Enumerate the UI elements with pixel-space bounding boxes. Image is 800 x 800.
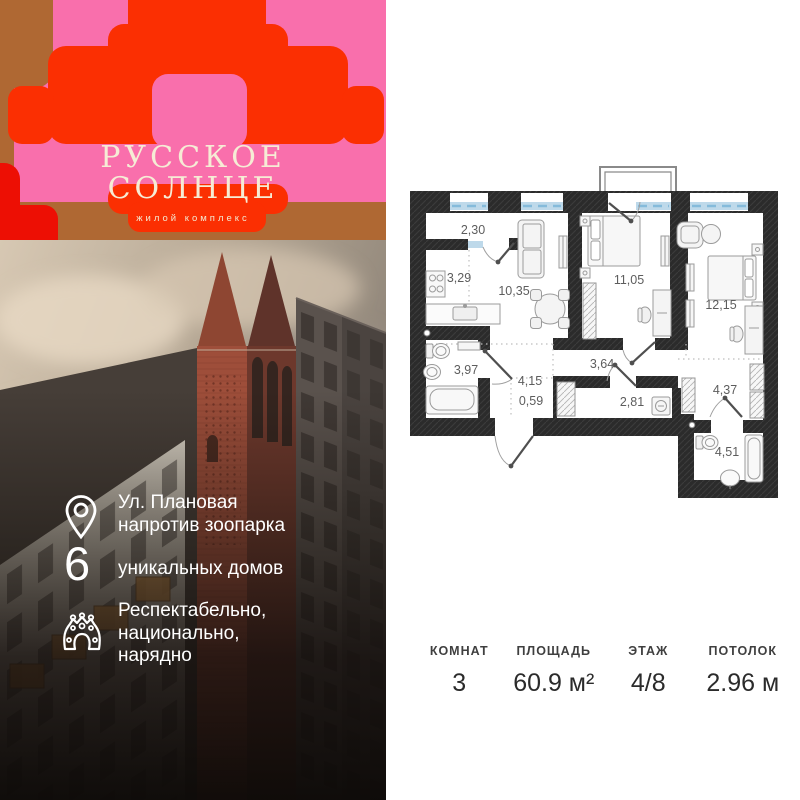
room-area-label: 10,35 — [498, 284, 529, 298]
location-pin-icon — [62, 494, 100, 540]
stat-ceiling: ПОТОЛОК 2.96 м — [696, 644, 791, 698]
pattern-orange-arm-right — [342, 86, 384, 144]
feature-style-line1: Респектабельно, — [118, 600, 266, 623]
kitchen-sink — [453, 307, 477, 320]
feature-address: Ул. Плановая напротив зоопарка — [118, 492, 285, 537]
feature-address-line2: напротив зоопарка — [118, 515, 285, 538]
stat-label: ЭТАЖ — [601, 644, 696, 658]
stat-area: ПЛОЩАДЬ 60.9 м² — [507, 644, 602, 698]
feature-style: Респектабельно, национально, нарядно — [118, 600, 266, 668]
room-area-label: 3,29 — [447, 271, 471, 285]
brand-logo: РУССКОЕ СОЛНЦЕ жилой комплекс — [40, 142, 346, 224]
feature-houses-line1: уникальных домов — [118, 558, 283, 581]
brand-name-line2: СОЛНЦЕ — [40, 173, 346, 204]
sink-1 — [424, 365, 441, 380]
room-area-label: 4,15 — [518, 374, 542, 388]
feature-address-line1: Ул. Плановая — [118, 492, 285, 515]
sofa — [518, 220, 544, 278]
numeral-six: 6 — [64, 540, 90, 587]
real-estate-flyer: РУССКОЕ СОЛНЦЕ жилой комплекс — [0, 0, 800, 800]
stat-value: 3 — [412, 669, 507, 698]
stat-label: ПОТОЛОК — [696, 644, 791, 658]
stat-value: 60.9 м² — [507, 669, 602, 698]
pattern-orange-arm-left — [8, 86, 54, 144]
room-area-label: 3,64 — [590, 357, 614, 371]
brand-name-line1: РУССКОЕ — [40, 142, 346, 173]
sink-2 — [721, 470, 740, 486]
feature-style-line3: нарядно — [118, 645, 266, 668]
room-area-label: 0,59 — [519, 394, 543, 408]
stat-label: КОМНАТ — [412, 644, 507, 658]
brand-panel: РУССКОЕ СОЛНЦЕ жилой комплекс — [0, 0, 386, 800]
balcony-rail — [600, 167, 676, 191]
kokoshnik-icon — [58, 610, 106, 654]
desk-2 — [745, 306, 763, 354]
room-area-label: 12,15 — [705, 298, 736, 312]
room-area-label: 4,37 — [713, 383, 737, 397]
room-area-label: 4,51 — [715, 445, 739, 459]
stat-value: 4/8 — [601, 669, 696, 698]
building-photo: Ул. Плановая напротив зоопарка 6 уникаль… — [0, 240, 386, 800]
stat-label: ПЛОЩАДЬ — [507, 644, 602, 658]
floor-plan: 2,30 3,29 10,35 11,05 12,15 3,97 4,15 0,… — [408, 158, 780, 503]
side-table — [702, 225, 721, 244]
stat-floor: ЭТАЖ 4/8 — [601, 644, 696, 698]
pattern-brown-topleft — [0, 0, 53, 88]
toilet-1 — [426, 344, 433, 358]
feature-list: Ул. Плановая напротив зоопарка 6 уникаль… — [0, 240, 386, 800]
room-area-label: 3,97 — [454, 363, 478, 377]
apartment-stats: КОМНАТ 3 ПЛОЩАДЬ 60.9 м² ЭТАЖ 4/8 ПОТОЛО… — [412, 644, 790, 698]
stat-rooms: КОМНАТ 3 — [412, 644, 507, 698]
room-area-label: 2,30 — [461, 223, 485, 237]
room-area-label: 2,81 — [620, 395, 644, 409]
feature-houses: уникальных домов — [118, 558, 283, 581]
stat-value: 2.96 м — [696, 669, 791, 698]
pattern-pink-center — [152, 74, 247, 148]
logo-block: РУССКОЕ СОЛНЦЕ жилой комплекс — [0, 0, 386, 240]
room-area-label: 11,05 — [614, 273, 644, 287]
feature-style-line2: национально, — [118, 623, 266, 646]
stove — [426, 271, 445, 297]
brand-tagline: жилой комплекс — [40, 213, 346, 224]
shelf — [458, 342, 480, 350]
